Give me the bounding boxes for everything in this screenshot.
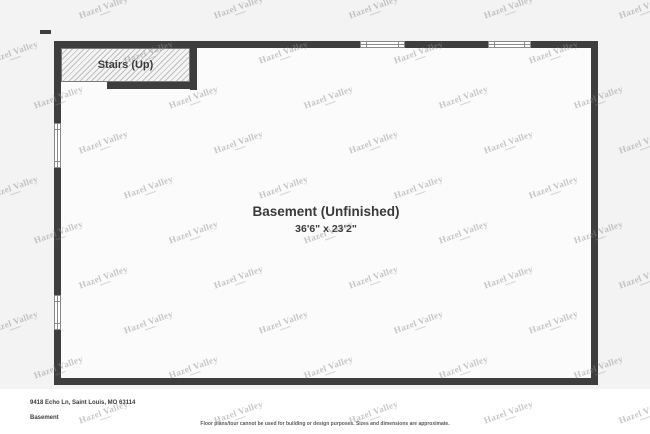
watermark-text: Hazel Valley — [212, 0, 264, 22]
floorplan-page: Stairs (Up) Basement (Unfinished) 36'6" … — [0, 0, 650, 434]
window-top-2 — [488, 41, 531, 48]
window-left-2 — [54, 295, 61, 330]
footer-disclaimer: Floor plans/tour cannot be used for buil… — [0, 421, 650, 427]
watermark-text: Hazel Valley — [0, 309, 40, 338]
watermark-text: Hazel Valley — [617, 129, 650, 158]
watermark-text: Hazel Valley — [617, 0, 650, 22]
watermark-text: Hazel Valley — [482, 0, 534, 22]
room-name: Basement (Unfinished) — [61, 203, 591, 220]
wall-fragment-mark — [40, 30, 51, 34]
footer: 9418 Echo Ln, Saint Louis, MO 63114 Base… — [0, 389, 650, 434]
stairs-area: Stairs (Up) — [61, 48, 190, 82]
watermark-text: Hazel Valley — [347, 0, 399, 22]
watermark-text: Hazel Valley — [77, 0, 129, 22]
room-label: Basement (Unfinished) 36'6" x 23'2" — [61, 203, 591, 236]
room-dimensions: 36'6" x 23'2" — [61, 222, 591, 236]
stairs-label: Stairs (Up) — [98, 59, 154, 71]
window-left-1 — [54, 123, 61, 168]
footer-address: 9418 Echo Ln, Saint Louis, MO 63114 — [30, 400, 135, 406]
watermark-text: Hazel Valley — [617, 264, 650, 293]
window-top-1 — [360, 41, 405, 48]
stairs-wall-bottom — [107, 82, 197, 89]
watermark-text: Hazel Valley — [0, 39, 40, 68]
watermark-text: Hazel Valley — [0, 174, 40, 203]
floor-plan: Stairs (Up) Basement (Unfinished) 36'6" … — [54, 41, 598, 385]
